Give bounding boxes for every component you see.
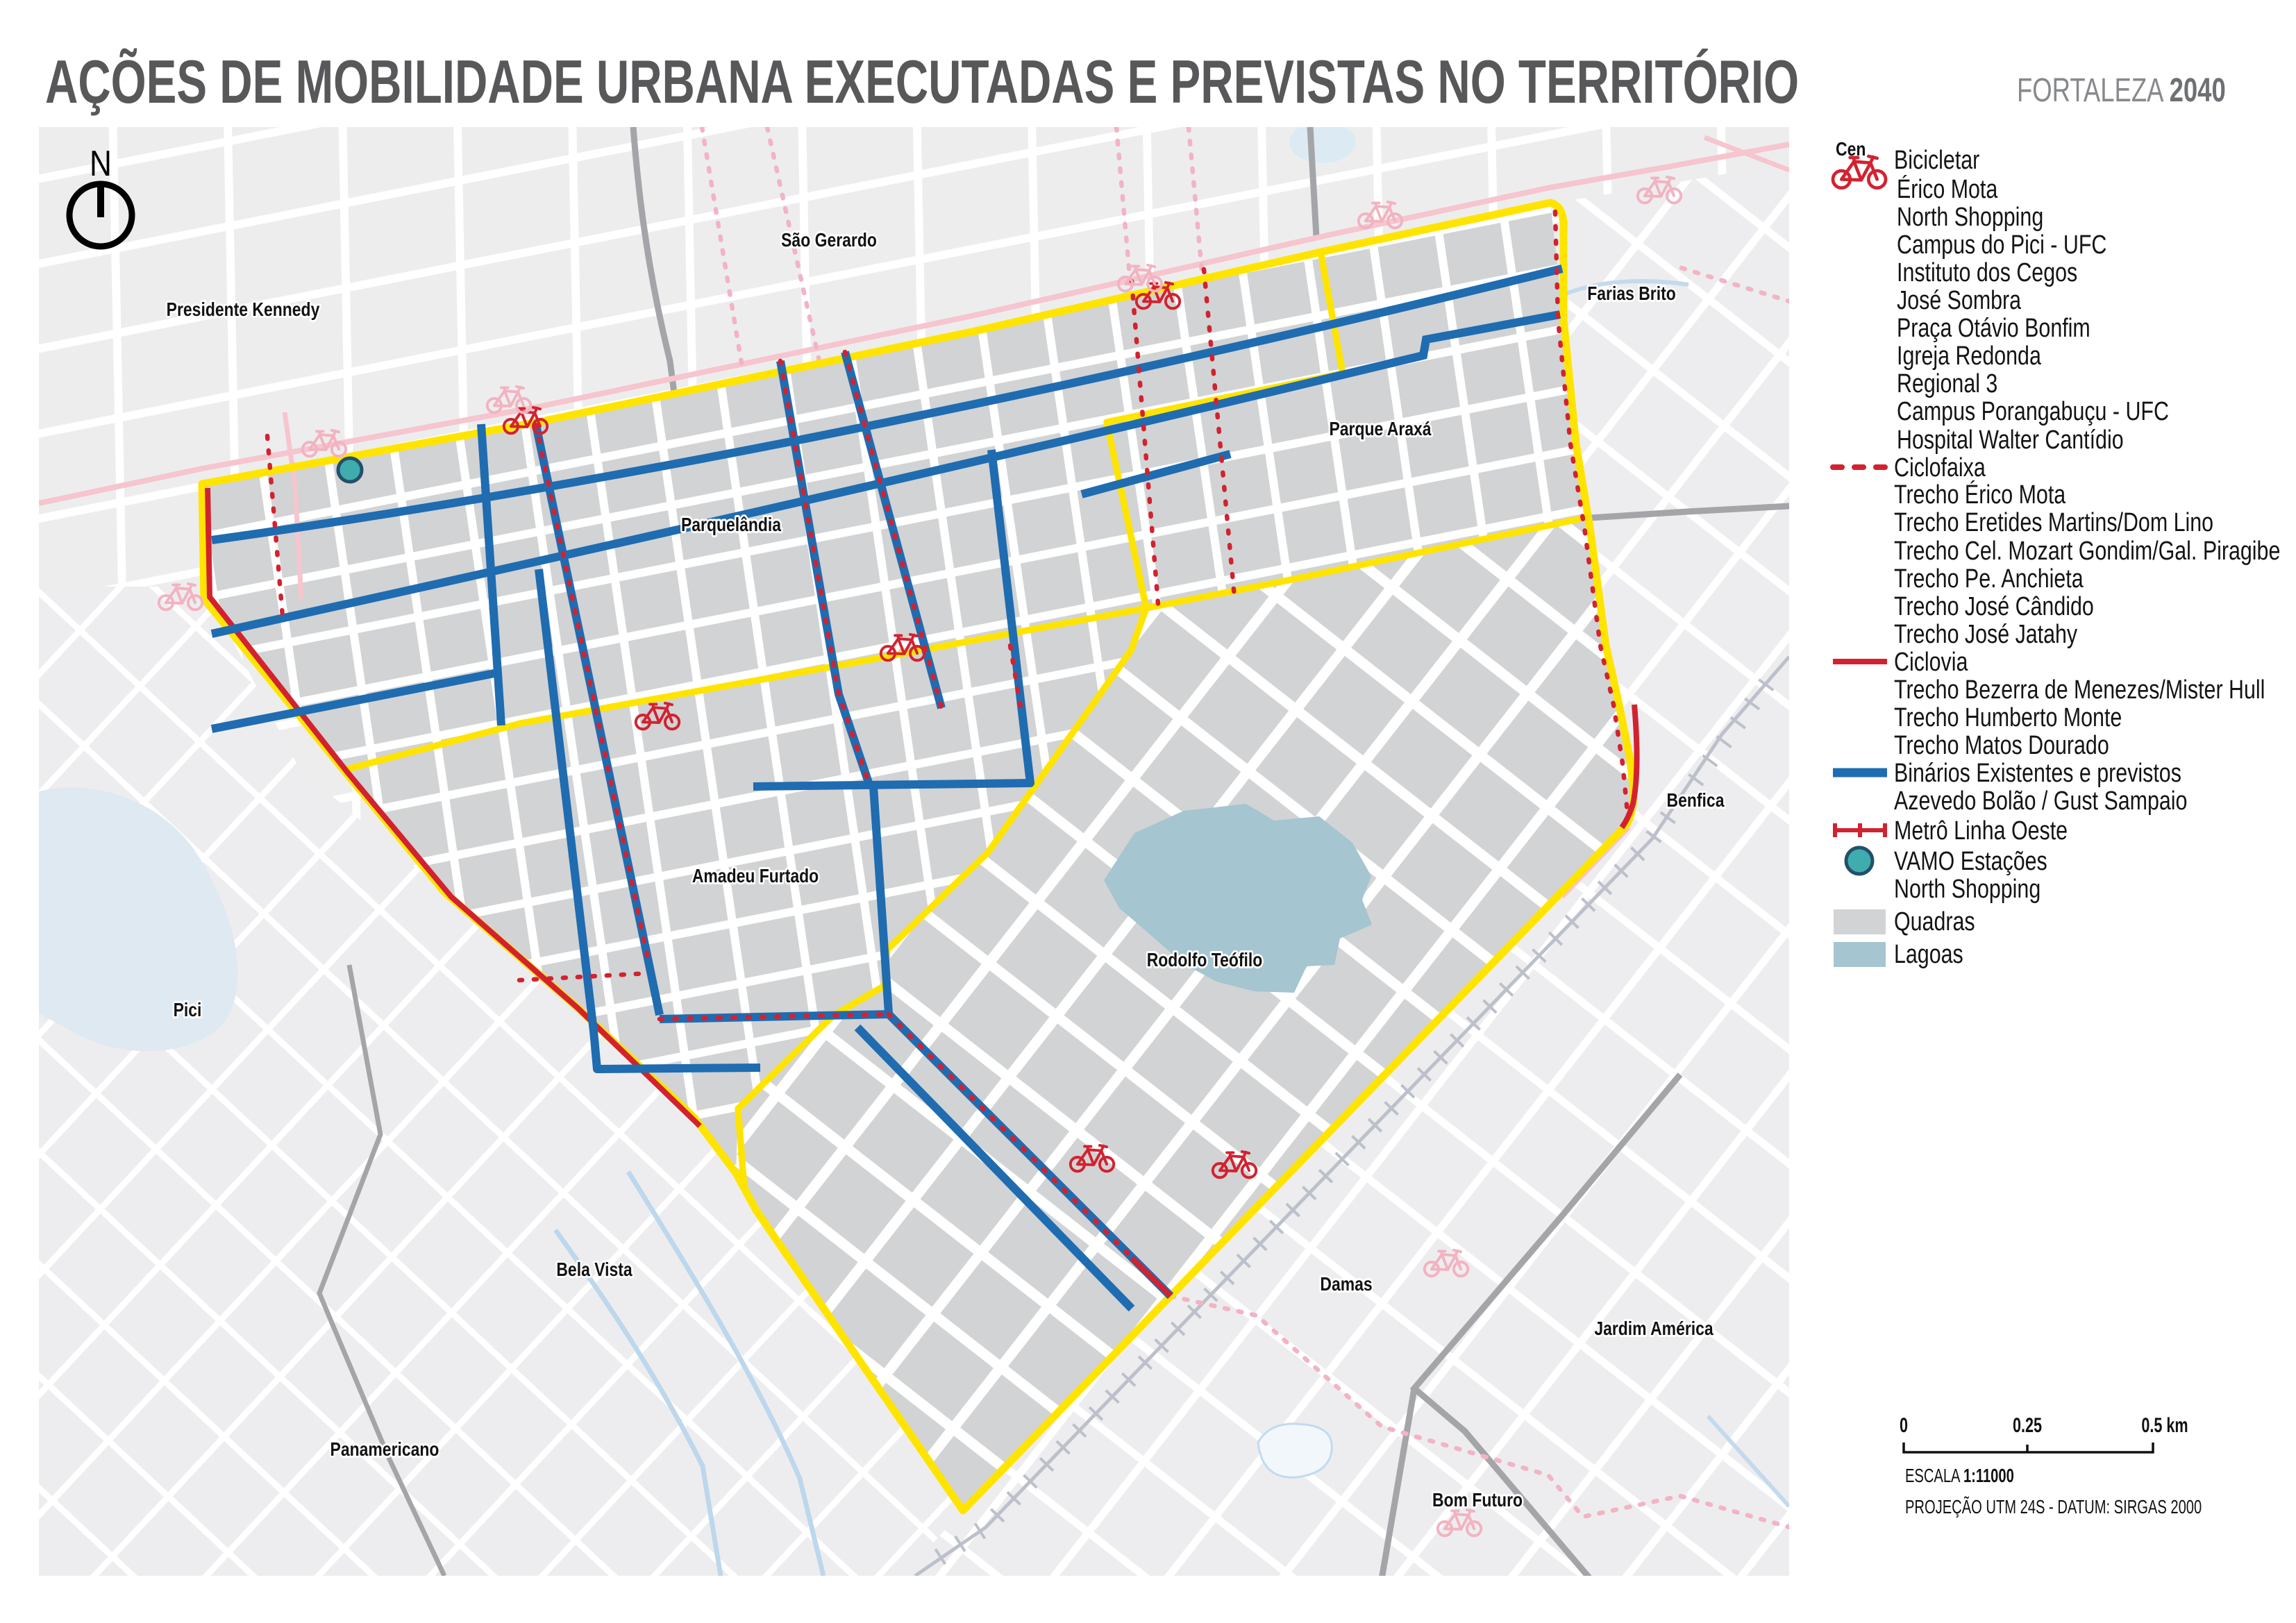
svg-text:Ciclovia: Ciclovia [1894, 648, 1968, 677]
svg-text:Trecho José Cândido: Trecho José Cândido [1894, 592, 2094, 621]
svg-text:Farias Brito: Farias Brito [1587, 283, 1676, 305]
svg-text:0: 0 [1900, 1413, 1908, 1436]
svg-text:Trecho Bezerra de Menezes/Mist: Trecho Bezerra de Menezes/Mister Hull [1894, 675, 2265, 705]
svg-text:Trecho Eretides Martins/Dom Li: Trecho Eretides Martins/Dom Lino [1894, 508, 2213, 537]
svg-text:Trecho Matos Dourado: Trecho Matos Dourado [1894, 731, 2109, 760]
svg-text:North Shopping: North Shopping [1897, 203, 2043, 232]
svg-text:São Gerardo: São Gerardo [781, 230, 877, 251]
svg-text:AÇÕES DE MOBILIDADE URBANA EXE: AÇÕES DE MOBILIDADE URBANA EXECUTADAS E … [45, 49, 1799, 117]
svg-text:Trecho Pe. Anchieta: Trecho Pe. Anchieta [1894, 564, 2084, 594]
svg-text:North Shopping: North Shopping [1894, 875, 2041, 904]
svg-text:Érico Mota: Érico Mota [1897, 174, 1998, 204]
svg-text:PROJEÇÃO UTM 24S - DATUM: SIRG: PROJEÇÃO UTM 24S - DATUM: SIRGAS 2000 [1905, 1497, 2202, 1518]
svg-text:Parque Araxá: Parque Araxá [1329, 419, 1432, 440]
svg-text:Praça Otávio Bonfim: Praça Otávio Bonfim [1897, 314, 2090, 343]
svg-text:Pici: Pici [174, 1000, 202, 1021]
svg-text:Hospital Walter Cantídio: Hospital Walter Cantídio [1897, 426, 2124, 455]
svg-text:0.5 km: 0.5 km [2141, 1413, 2188, 1436]
svg-text:Instituto dos Cegos: Instituto dos Cegos [1897, 258, 2077, 287]
svg-text:Trecho Humberto Monte: Trecho Humberto Monte [1894, 703, 2122, 732]
svg-text:Bom Futuro: Bom Futuro [1432, 1490, 1523, 1511]
svg-text:Lagoas: Lagoas [1894, 940, 1963, 969]
svg-text:Regional 3: Regional 3 [1897, 369, 1997, 398]
svg-text:Amadeu Furtado: Amadeu Furtado [692, 866, 819, 887]
svg-text:Campus Porangabuçu - UFC: Campus Porangabuçu - UFC [1897, 397, 2169, 426]
svg-text:Metrô Linha Oeste: Metrô Linha Oeste [1894, 816, 2068, 846]
svg-text:Panamericano: Panamericano [330, 1439, 439, 1461]
svg-text:0.25: 0.25 [2013, 1413, 2042, 1436]
svg-text:Damas: Damas [1320, 1274, 1372, 1295]
svg-text:Ciclofaixa: Ciclofaixa [1894, 453, 1986, 482]
svg-text:Quadras: Quadras [1894, 907, 1975, 936]
svg-text:Bela Vista: Bela Vista [556, 1259, 632, 1281]
svg-text:Parquelândia: Parquelândia [681, 514, 782, 536]
svg-text:VAMO Estações: VAMO Estações [1894, 847, 2047, 876]
svg-text:Jardim América: Jardim América [1594, 1318, 1713, 1340]
svg-text:José Sombra: José Sombra [1897, 286, 2022, 315]
svg-text:Rodolfo Teófilo: Rodolfo Teófilo [1147, 950, 1263, 971]
svg-text:Presidente Kennedy: Presidente Kennedy [167, 299, 320, 321]
svg-text:Binários Existentes e previsto: Binários Existentes e previstos [1894, 759, 2181, 788]
svg-text:Trecho José Jatahy: Trecho José Jatahy [1894, 620, 2078, 649]
svg-text:ESCALA 1:11000: ESCALA 1:11000 [1905, 1465, 2014, 1487]
svg-text:Benfica: Benfica [1667, 790, 1725, 811]
svg-text:Campus do Pici - UFC: Campus do Pici - UFC [1897, 230, 2106, 260]
svg-text:Bicicletar: Bicicletar [1894, 146, 1979, 175]
svg-text:Azevedo Bolão / Gust Sampaio: Azevedo Bolão / Gust Sampaio [1894, 787, 2187, 816]
svg-text:FORTALEZA 2040: FORTALEZA 2040 [2017, 72, 2226, 109]
svg-text:Trecho Cel. Mozart Gondim/Gal.: Trecho Cel. Mozart Gondim/Gal. Piragibe [1894, 537, 2280, 566]
svg-text:N: N [90, 144, 112, 184]
svg-text:Igreja Redonda: Igreja Redonda [1897, 342, 2042, 371]
svg-text:Trecho Érico Mota: Trecho Érico Mota [1894, 480, 2066, 510]
